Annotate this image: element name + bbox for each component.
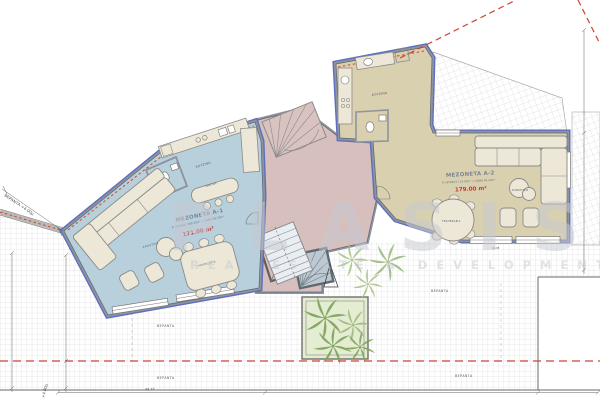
terrace-label-2: ΒΕΡΑΝΤΑ <box>431 289 449 293</box>
watermark: PLASIS REAL ESTATE & DEVELOPMENT <box>168 189 600 272</box>
terrace-label-3: ΒΕΡΑΝΤΑ <box>455 374 473 378</box>
dim-bottom-label: 34.77 <box>145 388 155 392</box>
floor-plan-page: MEZONETA A-1 Α' ΟΡΟΦΟΣ 105.50m² + ΔΩΜΑ 6… <box>0 0 600 400</box>
terrace-label-4: ΒΕΡΑΝΤΑ <box>157 376 175 380</box>
watermark-logo-text: PLASIS <box>168 189 600 266</box>
a2-wc <box>356 110 388 142</box>
watermark-tagline: REAL ESTATE & DEVELOPMENT <box>190 258 600 272</box>
a1-side-counter <box>240 127 259 172</box>
floor-plan-canvas: MEZONETA A-1 Α' ΟΡΟΦΟΣ 105.50m² + ΔΩΜΑ 6… <box>0 0 600 400</box>
terrace-label-1: ΒΕΡΑΝΤΑ <box>157 324 175 328</box>
terrace-grid-upper <box>433 52 567 133</box>
